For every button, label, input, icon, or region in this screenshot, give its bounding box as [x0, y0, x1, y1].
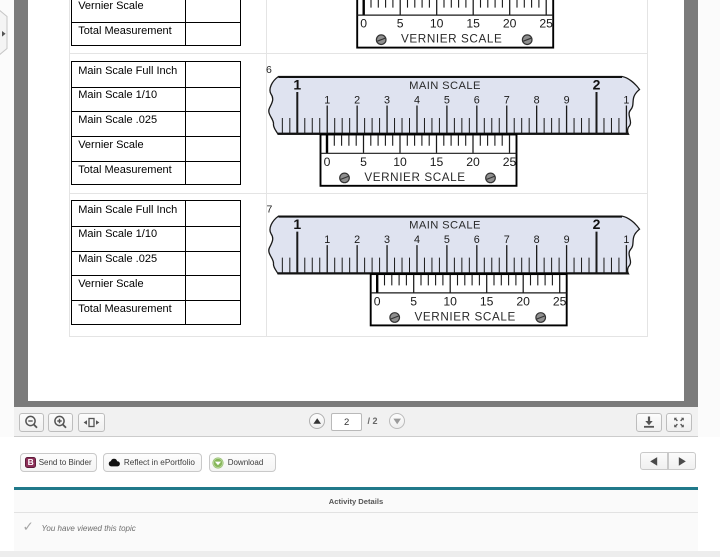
svg-text:6: 6 [474, 95, 480, 107]
svg-text:0: 0 [360, 17, 367, 31]
svg-text:5: 5 [444, 234, 450, 246]
svg-text:7: 7 [267, 204, 273, 216]
svg-text:5: 5 [410, 295, 417, 309]
svg-text:6: 6 [266, 64, 272, 76]
svg-text:VERNIER SCALE: VERNIER SCALE [415, 311, 516, 324]
svg-text:15: 15 [480, 295, 494, 309]
svg-text:20: 20 [503, 17, 517, 31]
svg-text:3: 3 [384, 234, 390, 246]
svg-text:25: 25 [553, 295, 567, 309]
svg-text:MAIN SCALE: MAIN SCALE [409, 80, 481, 92]
svg-text:5: 5 [444, 95, 450, 107]
svg-text:25: 25 [539, 17, 553, 31]
svg-text:2: 2 [593, 77, 601, 93]
svg-text:2: 2 [354, 234, 360, 246]
svg-text:10: 10 [393, 155, 407, 169]
svg-text:0: 0 [374, 295, 381, 309]
svg-text:1: 1 [324, 95, 330, 107]
svg-text:15: 15 [466, 17, 480, 31]
svg-text:1: 1 [623, 95, 629, 107]
svg-text:20: 20 [516, 295, 530, 309]
svg-text:2: 2 [593, 216, 601, 232]
svg-text:2: 2 [354, 95, 360, 107]
svg-text:1: 1 [293, 77, 301, 93]
svg-text:7: 7 [504, 234, 510, 246]
svg-text:0: 0 [324, 155, 331, 169]
svg-text:VERNIER SCALE: VERNIER SCALE [364, 171, 465, 184]
svg-text:4: 4 [414, 234, 420, 246]
svg-text:5: 5 [397, 17, 404, 31]
svg-text:4: 4 [414, 95, 420, 107]
svg-text:10: 10 [430, 17, 444, 31]
svg-text:20: 20 [466, 155, 480, 169]
svg-text:10: 10 [443, 295, 457, 309]
svg-text:15: 15 [430, 155, 444, 169]
svg-text:7: 7 [504, 95, 510, 107]
svg-text:1: 1 [324, 234, 330, 246]
svg-text:9: 9 [564, 95, 570, 107]
svg-text:1: 1 [623, 234, 629, 246]
svg-text:9: 9 [564, 234, 570, 246]
svg-text:5: 5 [360, 155, 367, 169]
svg-text:3: 3 [384, 95, 390, 107]
svg-text:VERNIER SCALE: VERNIER SCALE [401, 33, 502, 46]
svg-text:8: 8 [534, 95, 540, 107]
svg-text:1: 1 [293, 216, 301, 232]
svg-text:25: 25 [503, 155, 517, 169]
svg-text:MAIN SCALE: MAIN SCALE [409, 220, 481, 232]
svg-text:8: 8 [534, 234, 540, 246]
svg-text:6: 6 [474, 234, 480, 246]
